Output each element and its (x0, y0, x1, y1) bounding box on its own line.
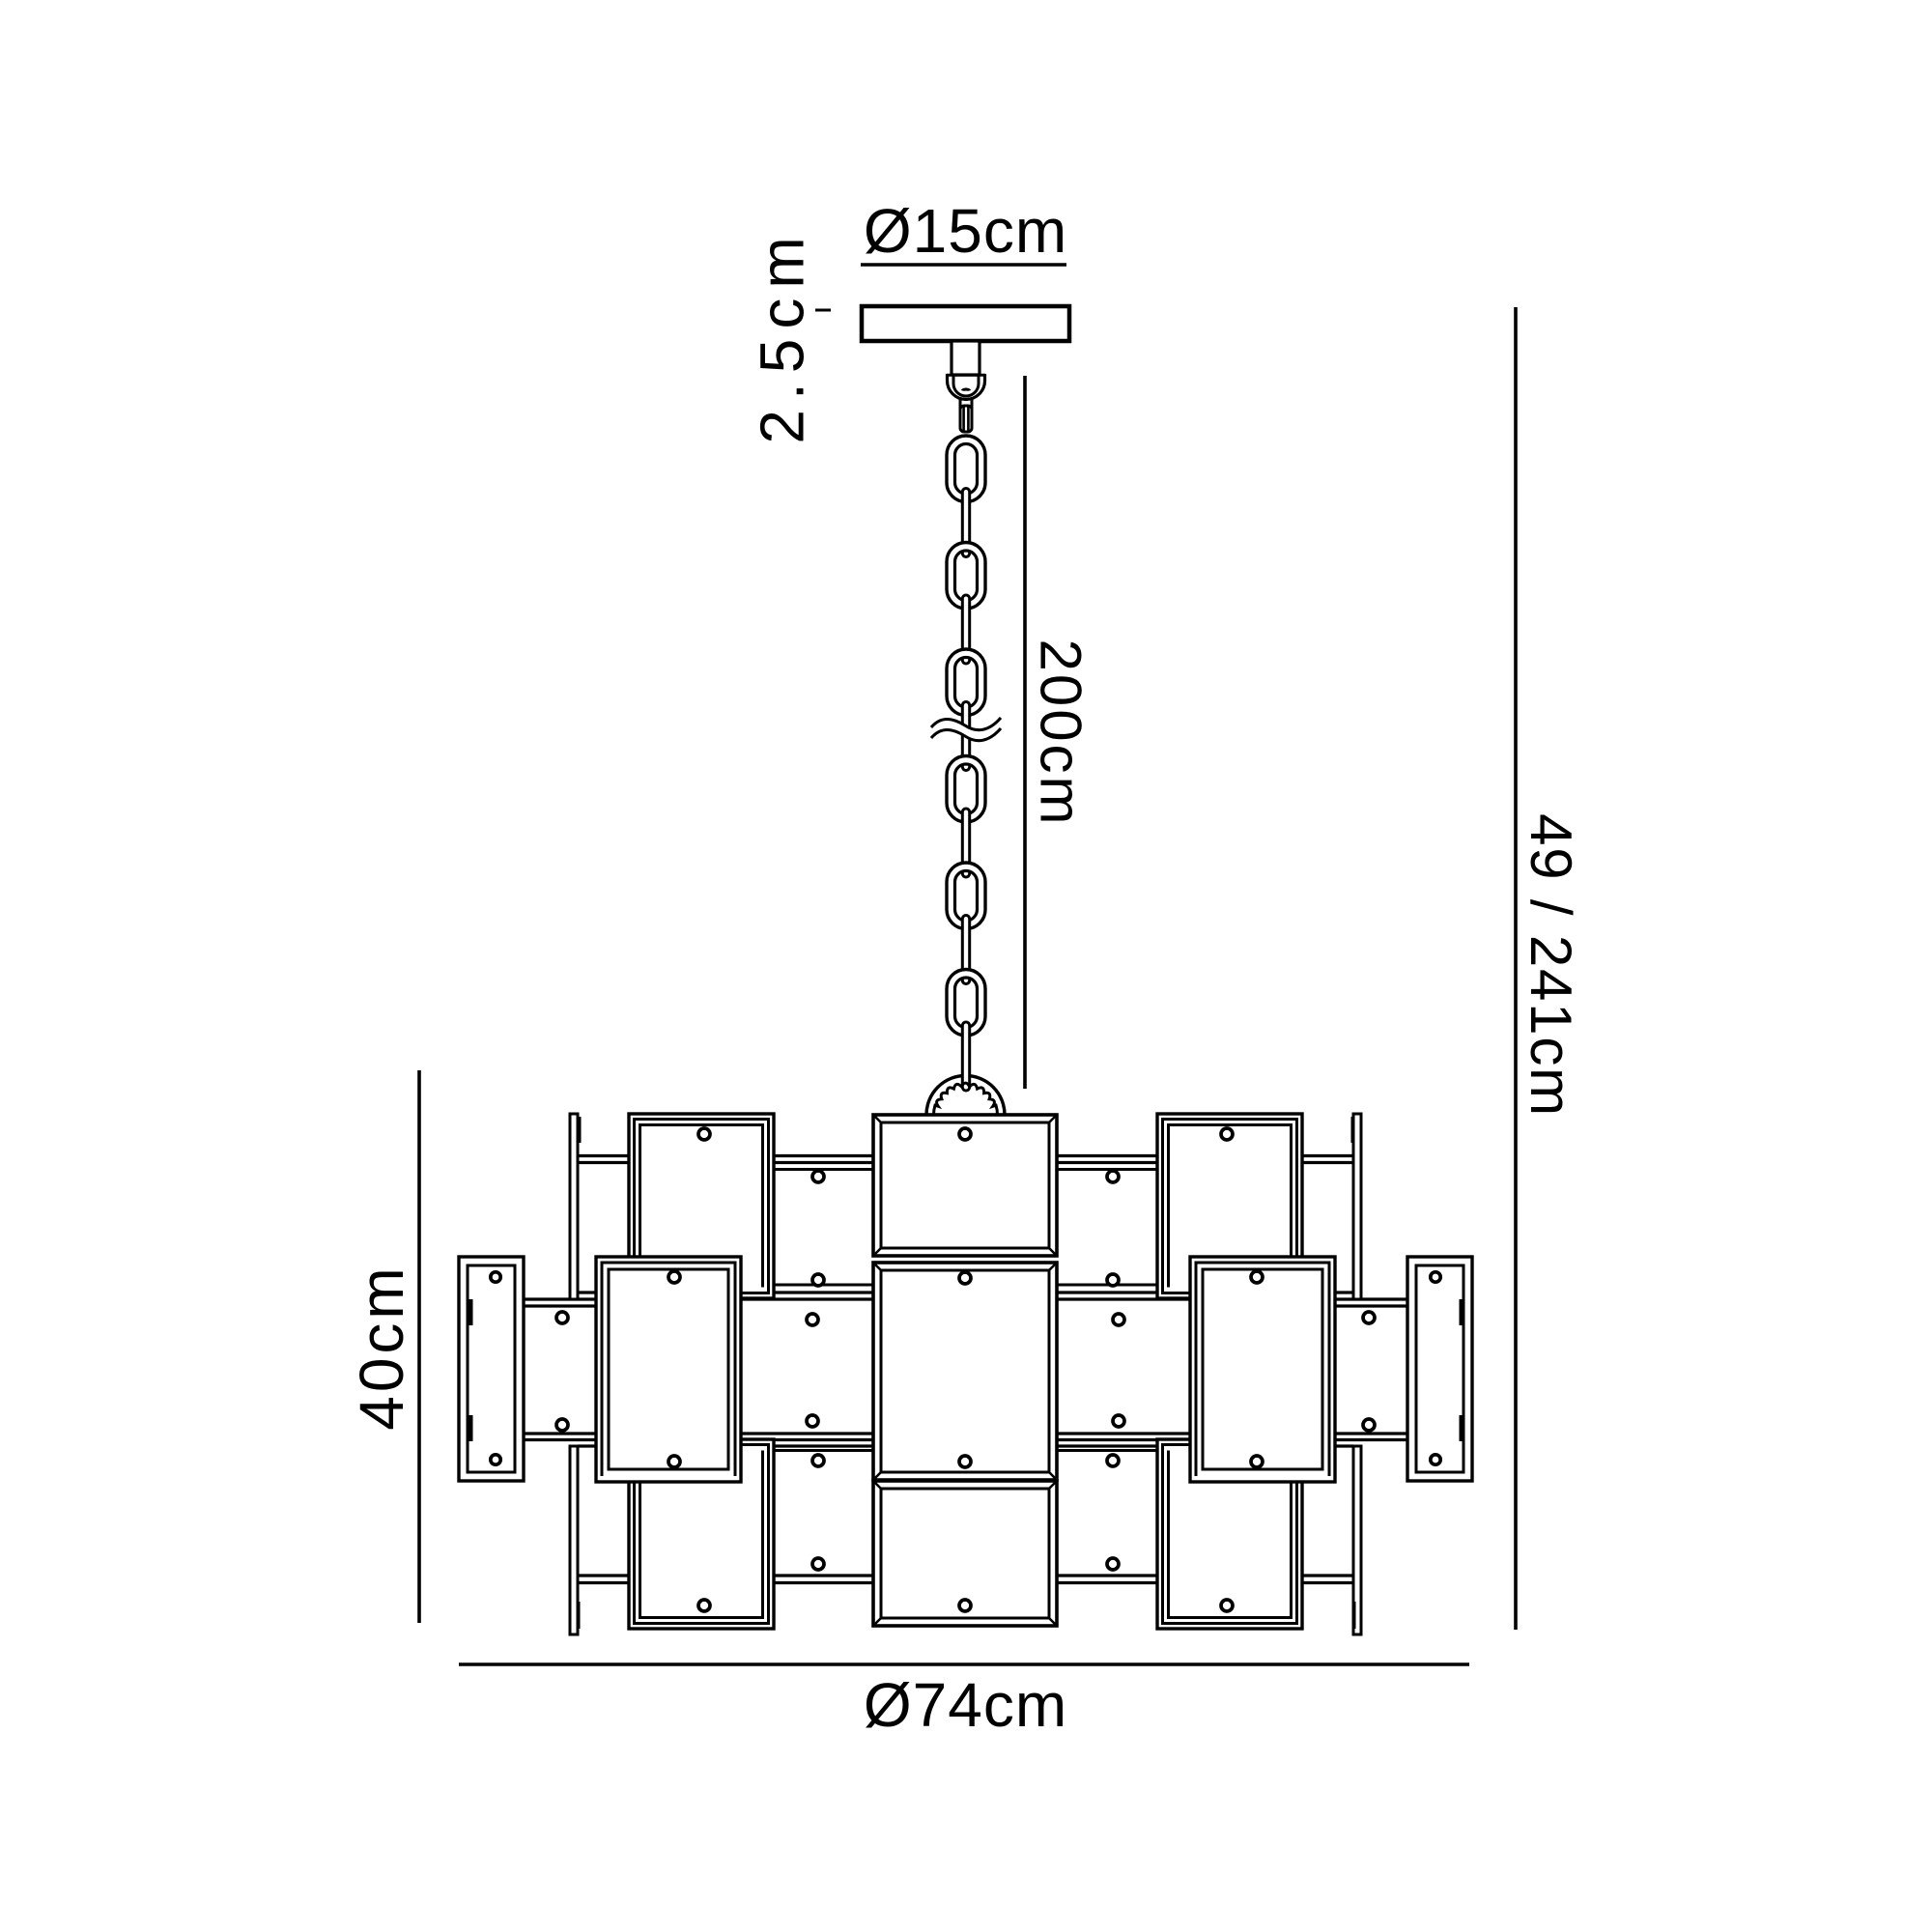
svg-text:2.5cm: 2.5cm (748, 227, 817, 443)
svg-text:40cm: 40cm (347, 1264, 416, 1431)
svg-text:200cm: 200cm (1029, 639, 1094, 827)
svg-text:Ø15cm: Ø15cm (864, 196, 1067, 266)
svg-text:49 / 241cm: 49 / 241cm (1519, 813, 1583, 1118)
svg-text:Ø74cm: Ø74cm (864, 1670, 1067, 1740)
